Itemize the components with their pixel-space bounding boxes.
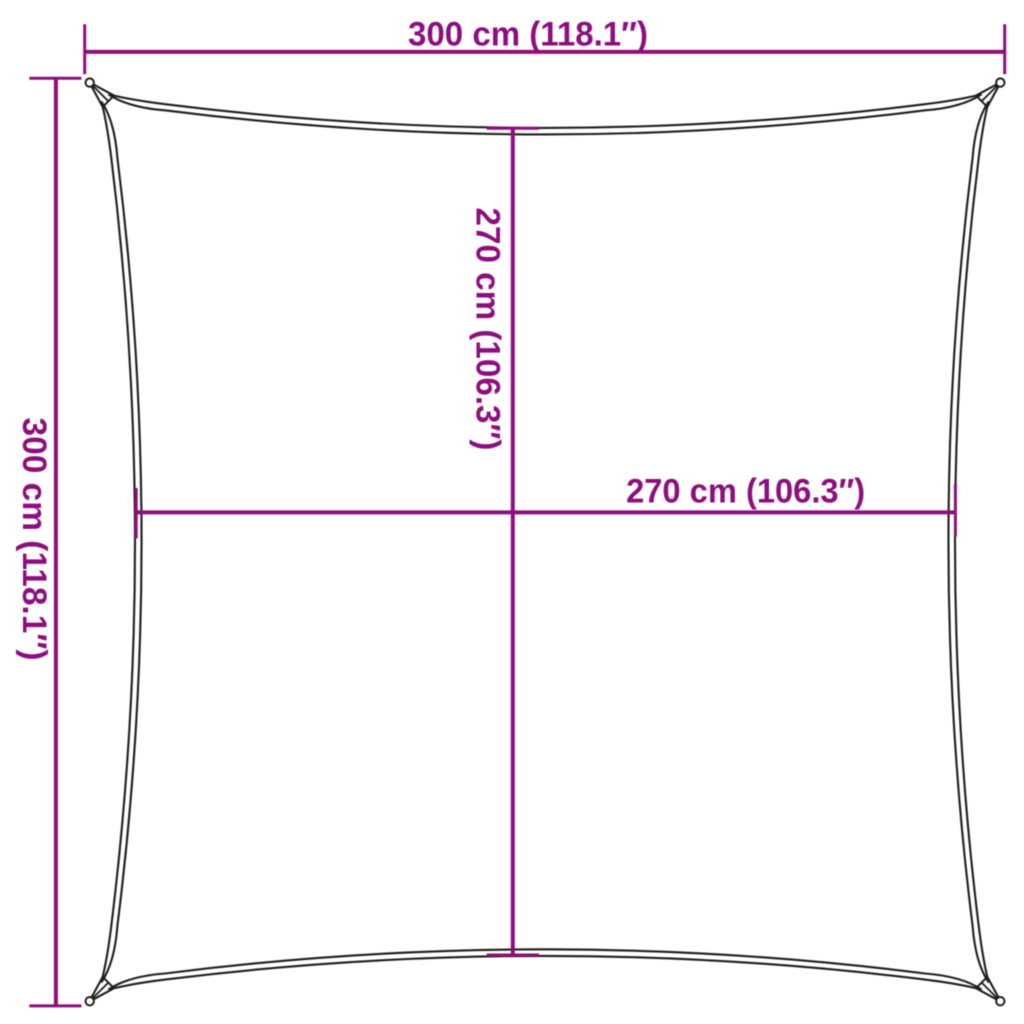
svg-text:300 cm (118.1″): 300 cm (118.1″) (15, 418, 53, 661)
svg-text:300 cm (118.1″): 300 cm (118.1″) (408, 15, 648, 53)
svg-text:270 cm (106.3″): 270 cm (106.3″) (469, 208, 507, 451)
svg-text:270 cm (106.3″): 270 cm (106.3″) (626, 473, 865, 511)
